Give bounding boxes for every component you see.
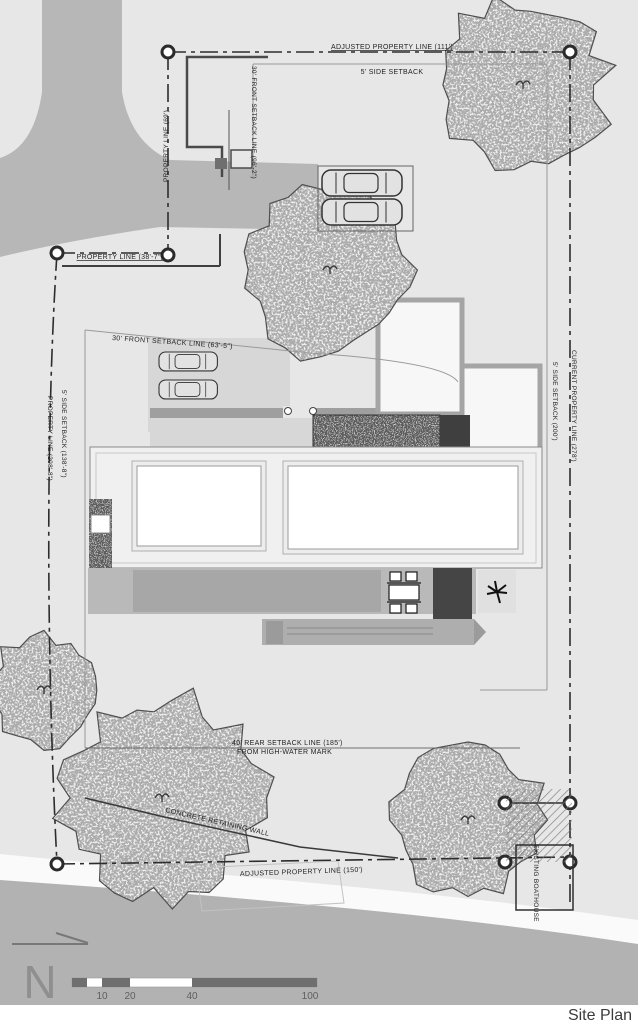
label-property-line-69: PROPERTY LINE (69') — [163, 110, 170, 182]
scale-tick-20: 20 — [124, 991, 136, 1002]
deck-step — [266, 621, 283, 644]
label-existing-boathouse: EXISTING BOATHOUSE — [532, 844, 539, 922]
side-planter — [89, 499, 112, 570]
label-rear-setback: 40' REAR SETBACK LINE (185') — [232, 740, 343, 747]
lower-deck — [262, 619, 474, 645]
label-current-property-line: CURRENT PROPERTY LINE (278') — [570, 350, 577, 462]
property-corner-marker-icon — [162, 249, 174, 261]
label-high-water-mark: FROM HIGH-WATER MARK — [237, 749, 332, 756]
site-plan-drawing: ADJUSTED PROPERTY LINE (111') 5' SIDE SE… — [0, 0, 638, 1024]
car-icon — [322, 170, 402, 196]
property-corner-marker-icon — [162, 46, 174, 58]
entry-court-upper — [378, 300, 462, 414]
label-property-line-38: PROPERTY LINE (38'-7") — [77, 254, 164, 261]
property-corner-marker-icon — [51, 858, 63, 870]
label-front-setback-96: 30' FRONT SETBACK LINE (96'-2") — [250, 66, 257, 179]
planted-roof-strip — [313, 415, 440, 447]
scale-tick-10: 10 — [96, 991, 108, 1002]
car-icon — [159, 352, 217, 371]
skylight-left — [137, 466, 261, 546]
column-marker — [310, 408, 317, 415]
label-adjusted-property-line-top: ADJUSTED PROPERTY LINE (111') — [331, 44, 453, 51]
dark-roof-block — [440, 415, 470, 447]
property-corner-marker-icon — [51, 247, 63, 259]
label-side-setback-138: 5' SIDE SETBACK (138'-8") — [60, 390, 67, 478]
car-icon — [159, 380, 217, 399]
label-side-setback-200: 5' SIDE SETBACK (200') — [551, 362, 558, 441]
title-strip — [0, 1005, 638, 1024]
page-title: Site Plan — [568, 1007, 632, 1024]
entry-walk — [150, 418, 313, 447]
planter-pad — [91, 515, 110, 533]
skylight-right — [288, 466, 518, 549]
label-side-setback-top: 5' SIDE SETBACK — [361, 69, 424, 76]
site-plan-page: ADJUSTED PROPERTY LINE (111') 5' SIDE SE… — [0, 0, 638, 1024]
label-property-line-208: PROPERTY LINE (208'-8") — [46, 396, 53, 481]
scale-tick-40: 40 — [186, 991, 198, 1002]
property-corner-marker-icon — [564, 46, 576, 58]
terrace-inner — [133, 570, 381, 612]
entry-court-lower — [462, 366, 540, 452]
column-marker — [285, 408, 292, 415]
north-letter: N — [23, 956, 56, 1008]
car-icon — [322, 199, 402, 225]
scale-tick-100: 100 — [302, 991, 319, 1002]
